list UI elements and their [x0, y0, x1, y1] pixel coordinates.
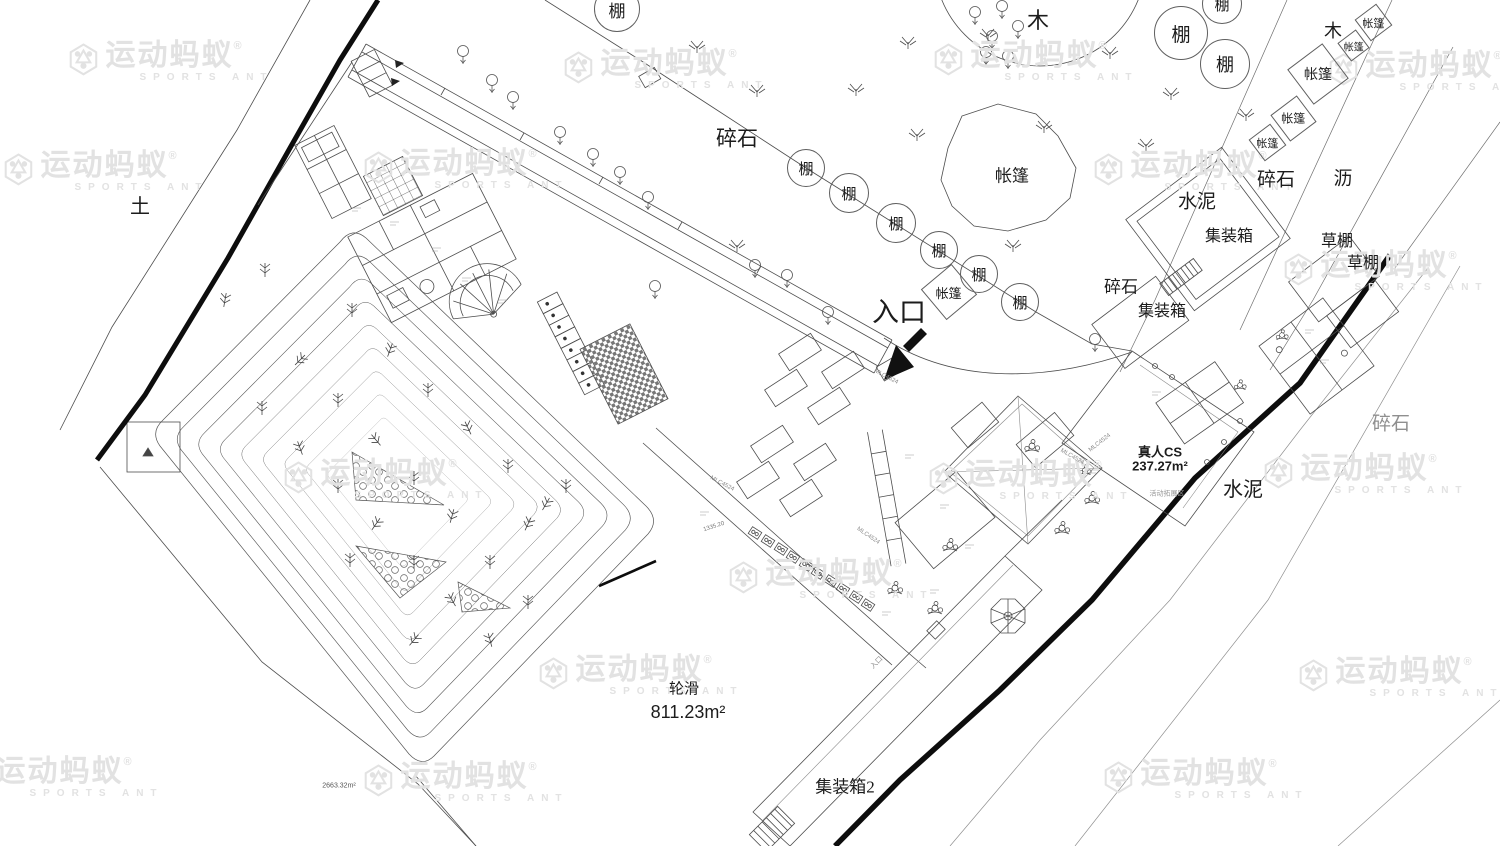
- plan-label-17: 237.27m²: [1132, 460, 1188, 473]
- plan-label-12: 草棚: [1321, 234, 1353, 250]
- plan-label-7: 集装箱: [1138, 304, 1186, 320]
- plan-label-11: 沥: [1333, 170, 1352, 189]
- site-plan-canvas: 土碎石入口帐篷木木碎石集装箱水泥集装箱碎石沥草棚草棚碎石水泥真人CS237.27…: [0, 0, 1500, 846]
- tent-label: 帐篷: [1304, 64, 1332, 84]
- shed-circle-3: 棚: [1200, 39, 1250, 89]
- plan-label-1: 碎石: [716, 129, 758, 150]
- plan-label-3: 帐篷: [995, 168, 1029, 185]
- tent-label: 帐篷: [936, 282, 962, 301]
- plan-label-0: 土: [130, 197, 150, 217]
- tent-label: 帐篷: [1343, 38, 1363, 53]
- plan-label-18: 活动拓展区: [1150, 491, 1185, 498]
- plan-label-20: 811.23m²: [651, 703, 726, 721]
- plan-label-21: 集装箱2: [815, 779, 875, 796]
- plan-label-4: 木: [1027, 10, 1049, 32]
- shed-circle-2: 棚: [1154, 6, 1208, 60]
- shed-circle-5: 棚: [829, 173, 869, 213]
- shed-circle-4: 棚: [787, 149, 825, 187]
- plan-label-14: 碎石: [1372, 415, 1410, 434]
- plan-label-10: 碎石: [1257, 171, 1295, 190]
- tent-label: 帐篷: [1256, 134, 1278, 150]
- plan-label-19: 轮滑: [669, 683, 699, 698]
- plan-label-5: 木: [1324, 22, 1342, 40]
- shed-circle-6: 棚: [876, 203, 916, 243]
- shed-circle-7: 棚: [920, 231, 958, 269]
- entrance-arrow: [884, 328, 927, 380]
- plan-label-9: 集装箱: [1205, 229, 1253, 245]
- plan-label-16: 真人CS: [1138, 446, 1182, 459]
- plan-label-15: 水泥: [1223, 480, 1263, 500]
- plan-label-22: 2663.32m²: [322, 783, 355, 790]
- plan-label-6: 碎石: [1104, 279, 1138, 296]
- tent-label: 帐篷: [1281, 109, 1305, 126]
- plan-label-8: 水泥: [1178, 193, 1216, 212]
- tent-label: 帐篷: [1362, 14, 1384, 30]
- shed-circle-9: 棚: [1001, 283, 1039, 321]
- plan-label-13: 草棚: [1347, 256, 1379, 272]
- plan-label-2: 入口: [872, 300, 926, 327]
